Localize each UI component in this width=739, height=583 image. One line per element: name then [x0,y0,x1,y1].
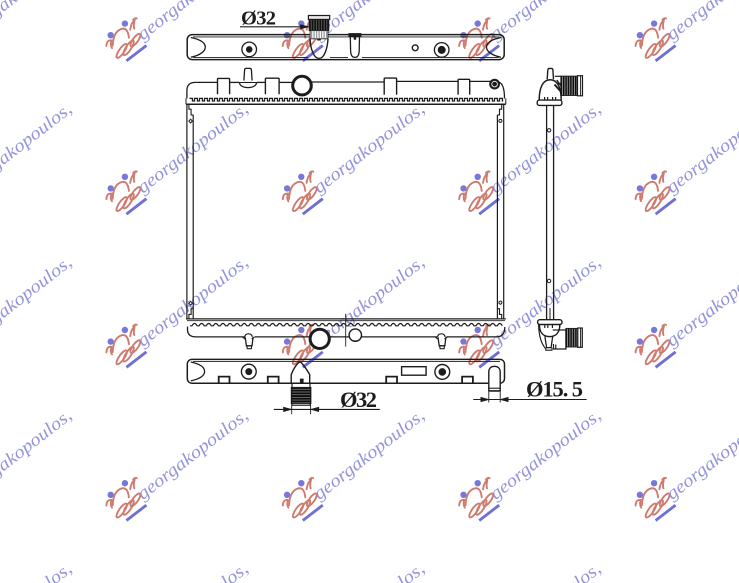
svg-text:Ø15. 5: Ø15. 5 [526,376,583,401]
svg-text:Ø32: Ø32 [241,7,276,29]
svg-text:Ø32: Ø32 [340,387,377,412]
